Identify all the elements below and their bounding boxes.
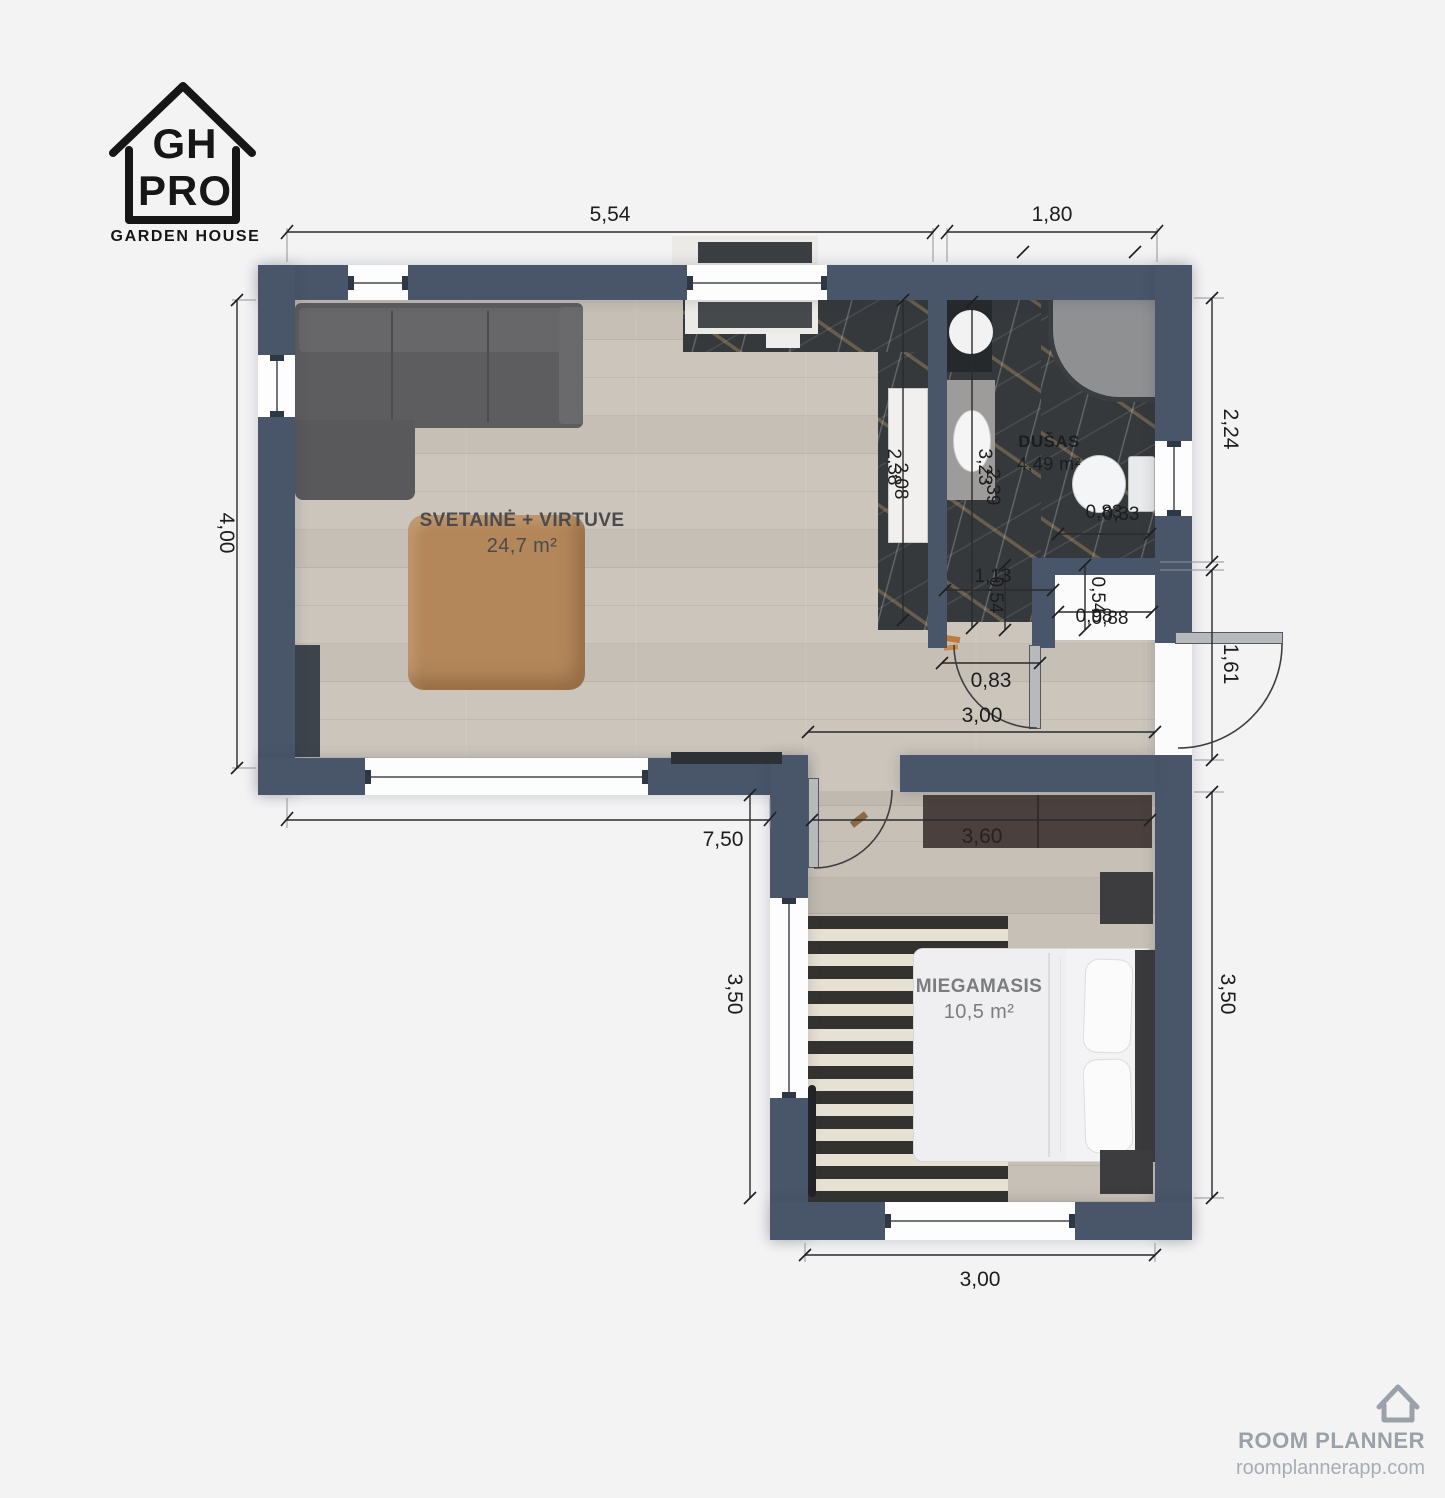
window-left: [258, 355, 295, 417]
window-top-kitchen: [687, 265, 827, 300]
dim-wardrobe-width: 3,60: [942, 825, 1022, 849]
logo-line1: GH: [95, 120, 275, 168]
kitchen-counter-outer-top: [698, 242, 812, 263]
dim-bathroom-door: 0,83: [951, 669, 1031, 693]
window-bottom-living: [365, 758, 648, 795]
pillow: [1082, 958, 1133, 1054]
sideboard: [671, 752, 782, 764]
living-room-name: SVETAINĖ + VIRTUVE: [392, 510, 652, 532]
room-planner-watermark: ROOM PLANNER roomplannerapp.com: [1236, 1381, 1425, 1480]
sofa-seat-divider: [391, 311, 393, 422]
dim-niche-height-left: 0,54: [984, 565, 1006, 625]
sofa-backrest: [299, 308, 579, 352]
dim-niche-width-b: 0,88: [1080, 608, 1140, 630]
bedroom-label: MIEGAMASIS 10,5 m²: [869, 976, 1089, 1024]
window-bedroom-left: [770, 898, 808, 1098]
dim-bathroom-depth-b: 2,08: [889, 451, 911, 511]
kitchen-sink-tab: [766, 333, 800, 348]
nightstand: [1100, 872, 1153, 924]
entry-door-opening: [1155, 643, 1192, 755]
floor-plan: 5,54 1,80 4,00 2,24 1,61 3,50 7,50 3,50 …: [0, 0, 1445, 1498]
living-room-label: SVETAINĖ + VIRTUVE 24,7 m²: [392, 510, 652, 558]
sofa-seat-divider: [487, 311, 489, 422]
dim-bottom-living: 7,50: [683, 828, 763, 852]
dim-top-bathroom: 1,80: [1012, 203, 1092, 227]
dim-bedroom-bottom: 3,00: [940, 1268, 1020, 1292]
wall-left: [258, 265, 295, 795]
bathroom-label: DUŠAS 4,49 m²: [969, 432, 1129, 475]
wardrobe-divider: [1037, 795, 1039, 848]
dim-hallway-width: 3,00: [942, 704, 1022, 728]
living-room-area: 24,7 m²: [392, 535, 652, 558]
nightstand: [1100, 1150, 1153, 1194]
house-watermark-icon: [1371, 1381, 1425, 1423]
sofa: [295, 303, 583, 428]
watermark-title: ROOM PLANNER: [1236, 1428, 1425, 1454]
dim-left-living: 4,00: [214, 498, 238, 568]
kitchen-cooktop: [698, 302, 812, 328]
bathroom-area: 4,49 m²: [969, 454, 1129, 475]
dim-right-bedroom: 3,50: [1215, 959, 1239, 1029]
tv-bench: [295, 645, 320, 757]
pillow: [1082, 1058, 1133, 1154]
wall-bedroom-top: [900, 755, 1155, 792]
dim-right-entry: 1,61: [1218, 629, 1242, 699]
bedroom-door-leaf: [808, 778, 819, 868]
watermark-url: roomplannerapp.com: [1236, 1457, 1425, 1480]
round-sink: [949, 310, 993, 354]
logo-subtitle: GARDEN HOUSE: [83, 228, 288, 246]
headboard: [1135, 950, 1155, 1162]
bedroom-name: MIEGAMASIS: [869, 976, 1089, 998]
wall-bathroom-left: [928, 300, 947, 648]
logo-line2: PRO: [95, 167, 275, 215]
sofa-armrest: [559, 307, 583, 424]
wall-niche-left: [1032, 558, 1055, 648]
dim-top-living: 5,54: [570, 203, 650, 227]
radiator-strip: [808, 1085, 816, 1197]
sofa-chaise: [295, 420, 415, 500]
dim-toilet-width-b: 0,33: [1091, 504, 1151, 526]
dim-right-bathroom: 2,24: [1218, 394, 1242, 464]
window-bedroom-bottom: [885, 1202, 1075, 1240]
bathroom-name: DUŠAS: [969, 432, 1129, 452]
window-top-small: [348, 265, 408, 300]
window-bathroom-right: [1155, 441, 1192, 516]
bedroom-area: 10,5 m²: [869, 1001, 1089, 1024]
bedroom-doorway-floor: [808, 755, 900, 792]
dim-bedroom-left: 3,50: [722, 959, 746, 1029]
